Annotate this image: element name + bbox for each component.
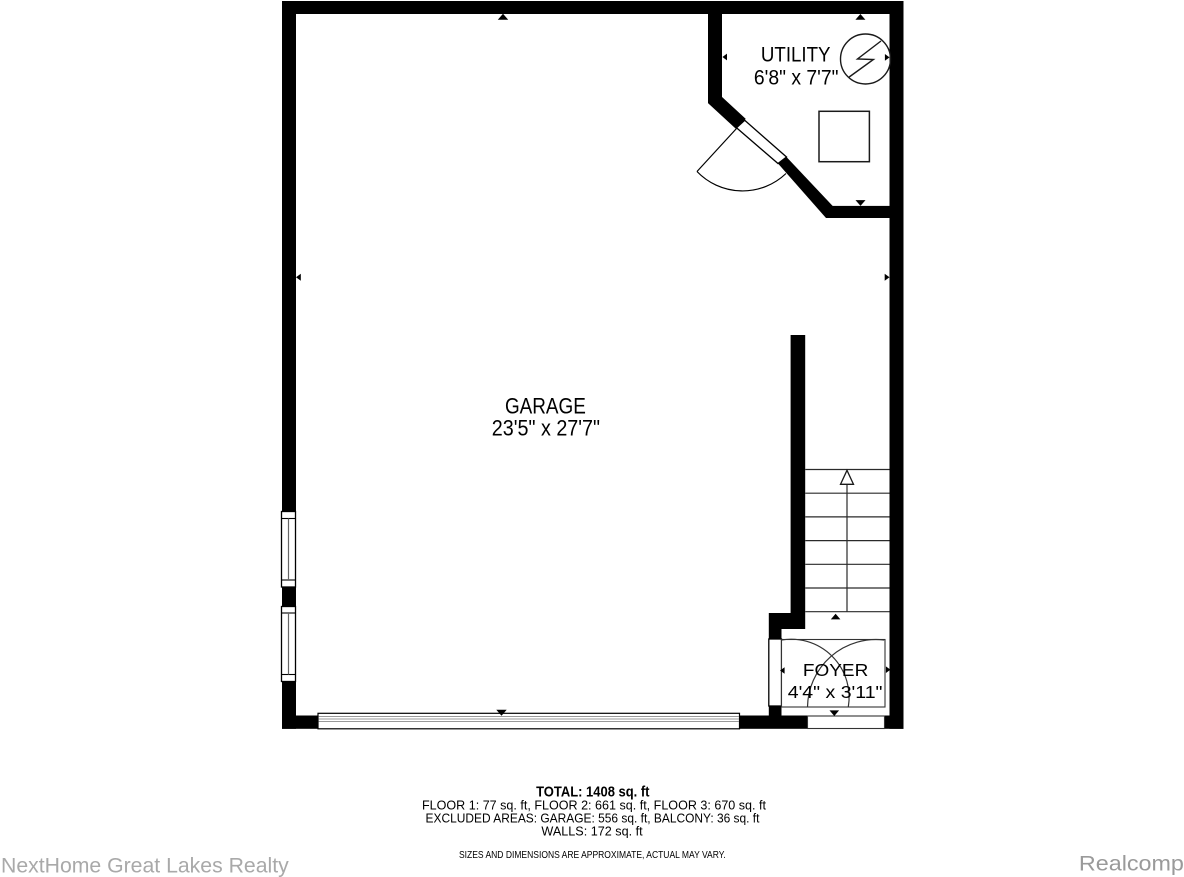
svg-text:NextHome Great Lakes Realty: NextHome Great Lakes Realty <box>1 855 289 877</box>
svg-text:SIZES AND DIMENSIONS ARE APPRO: SIZES AND DIMENSIONS ARE APPROXIMATE, AC… <box>459 849 726 860</box>
svg-text:4'4" x 3'11": 4'4" x 3'11" <box>788 682 883 702</box>
svg-text:GARAGE: GARAGE <box>505 394 586 419</box>
svg-text:Realcomp: Realcomp <box>1079 851 1184 875</box>
svg-text:UTILITY: UTILITY <box>761 44 831 67</box>
svg-text:WALLS: 172 sq. ft: WALLS: 172 sq. ft <box>541 823 643 838</box>
svg-text:23'5" x 27'7": 23'5" x 27'7" <box>492 417 600 441</box>
svg-text:6'8" x 7'7": 6'8" x 7'7" <box>754 67 839 90</box>
svg-text:FOYER: FOYER <box>803 659 868 679</box>
